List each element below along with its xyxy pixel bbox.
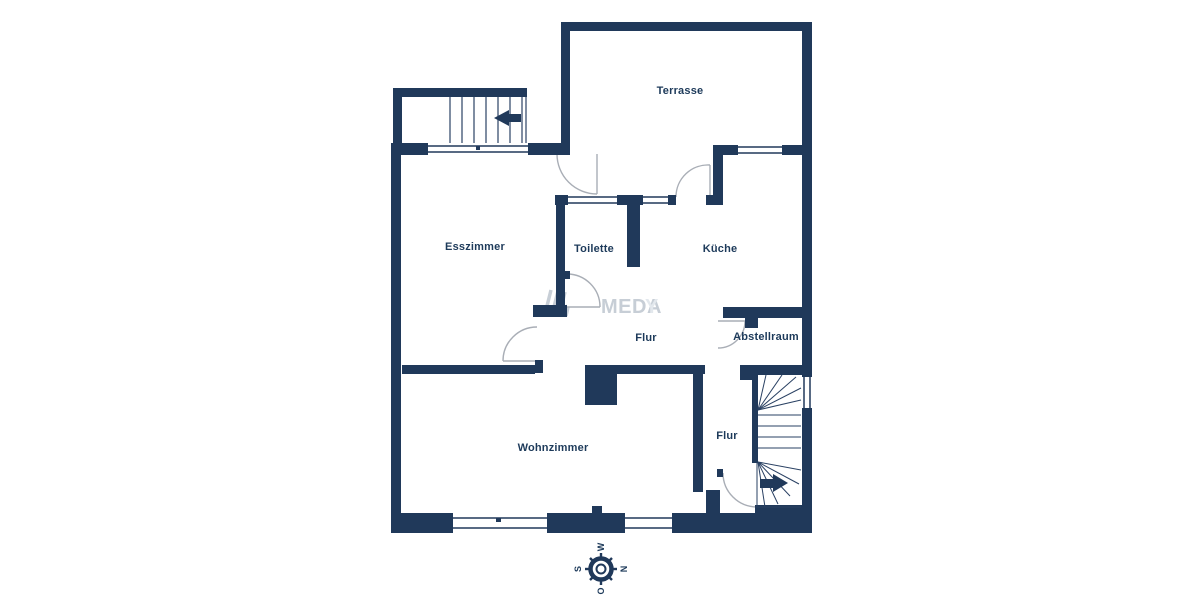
room-label-wohnzimmer: Wohnzimmer (518, 442, 589, 454)
room-label-toilette: Toilette (574, 243, 614, 255)
room-label-terrasse: Terrasse (657, 85, 704, 97)
watermark-text-faint: Y (645, 296, 659, 318)
compass-south-label: S (573, 566, 583, 572)
compass-north-label: N (619, 566, 629, 573)
compass-west-label: W (596, 542, 606, 551)
compass-icon: W N O S (573, 542, 629, 594)
staircase-bottom-right (756, 375, 801, 507)
room-label-abstellraum: Abstellraum (733, 331, 799, 343)
staircase-top-left (450, 97, 526, 143)
room-label-flur-unten: Flur (716, 430, 738, 442)
room-label-flur-mitte: Flur (635, 332, 657, 344)
room-label-kueche: Küche (703, 243, 738, 255)
room-label-esszimmer: Esszimmer (445, 241, 505, 253)
floor-plan-drawing: MEDA Y (0, 0, 1200, 600)
compass-east-label: O (596, 587, 606, 594)
walls (391, 22, 812, 533)
floor-plan-page: MEDA Y (0, 0, 1200, 600)
